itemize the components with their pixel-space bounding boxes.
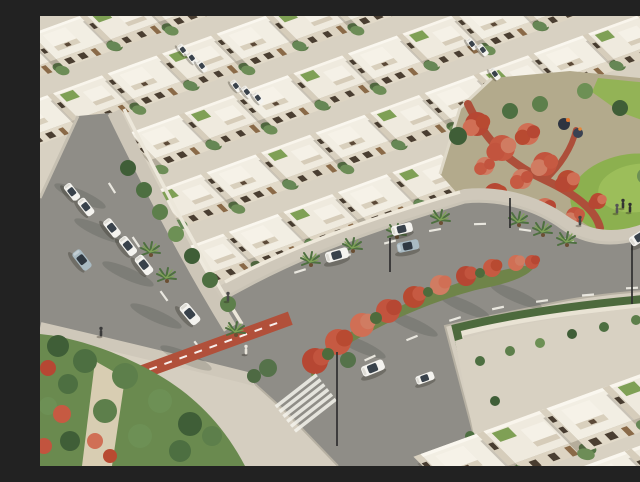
tree — [184, 248, 200, 264]
tree — [168, 226, 184, 242]
tree — [612, 100, 628, 116]
tree — [120, 160, 136, 176]
flame-bush — [87, 433, 103, 449]
tree — [58, 374, 78, 394]
tree — [136, 182, 152, 198]
tree — [152, 204, 168, 220]
tree — [148, 389, 172, 413]
flame-bush — [103, 449, 117, 463]
scene-canvas — [40, 16, 640, 466]
corner-island — [340, 352, 356, 368]
tree — [60, 431, 80, 451]
flame-bush — [53, 405, 71, 423]
flame-bush — [40, 360, 56, 376]
tree — [112, 363, 138, 389]
tree — [73, 349, 97, 373]
aerial-render: Daytime aerial 3D rendering of a master-… — [40, 16, 640, 466]
tree — [502, 103, 518, 119]
tree — [202, 426, 222, 446]
tree — [47, 335, 69, 357]
tree — [128, 424, 152, 448]
tree — [577, 83, 593, 99]
tree — [178, 412, 202, 436]
tree — [532, 96, 548, 112]
tree — [202, 272, 218, 288]
tree — [449, 127, 467, 145]
tree — [169, 440, 191, 462]
tree — [93, 399, 117, 423]
